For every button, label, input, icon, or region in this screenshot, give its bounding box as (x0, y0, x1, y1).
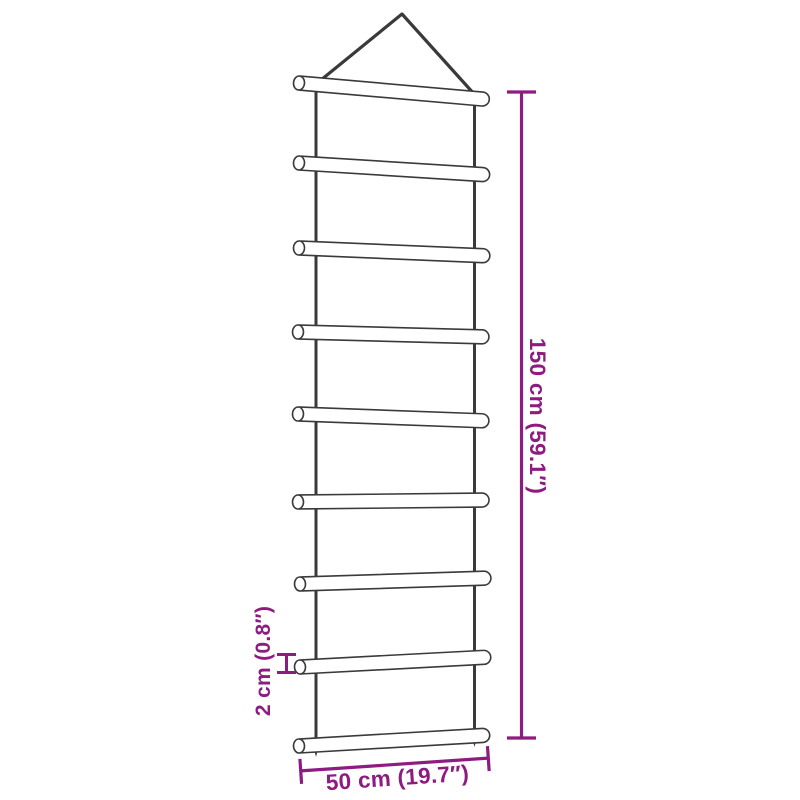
ladder-rung-9 (293, 728, 490, 753)
rung-thickness-dimension: 2 cm (0.8″) (252, 606, 296, 716)
ladder-rung-6 (292, 493, 489, 509)
width-dimension: 50 cm (19.7″) (300, 746, 490, 797)
product-dimension-diagram: 150 cm (59.1″) 2 cm (0.8″) 50 cm (19.7″) (0, 0, 800, 800)
ladder-rung-3 (293, 241, 490, 263)
height-dimension-label: 150 cm (59.1″) (525, 338, 550, 494)
ladder-rung-4 (292, 325, 489, 344)
ladder-rung-8 (294, 650, 491, 674)
ladder-rung-5 (292, 407, 489, 428)
rung-thickness-label: 2 cm (0.8″) (252, 606, 275, 716)
width-dimension-cap-left (300, 759, 302, 784)
height-dimension: 150 cm (59.1″) (507, 92, 550, 738)
hanging-ladder (292, 14, 491, 757)
ladder-diagram-svg: 150 cm (59.1″) 2 cm (0.8″) 50 cm (19.7″) (0, 0, 800, 800)
ladder-rung-2 (293, 156, 490, 182)
ladder-rung-7 (294, 571, 491, 591)
width-dimension-cap-right (487, 746, 489, 771)
width-dimension-label: 50 cm (19.7″) (325, 760, 470, 795)
